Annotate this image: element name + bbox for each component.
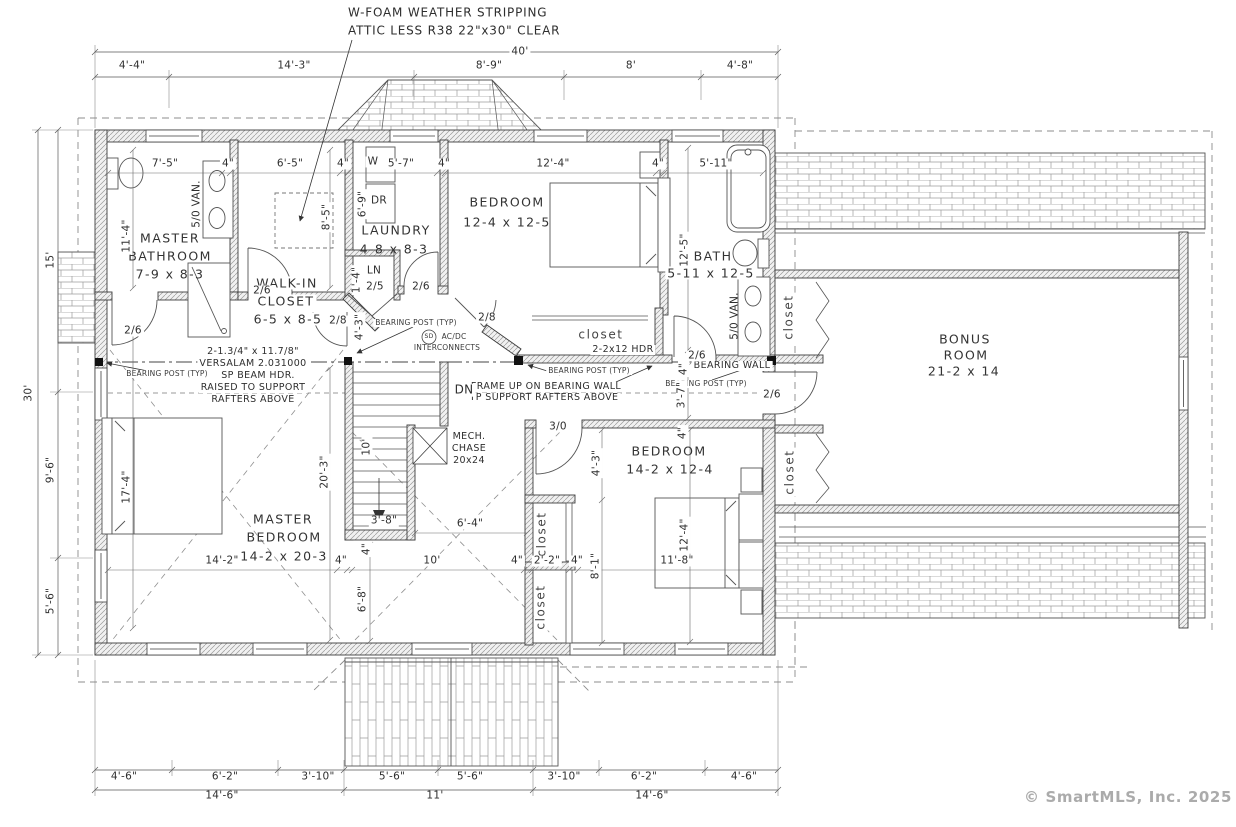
floor-plan-page: W-FOAM WEATHER STRIPPING ATTIC LESS R38 … [0, 0, 1236, 827]
dim-top-1: 4'-4" [117, 60, 147, 71]
note-weather-stripping: W-FOAM WEATHER STRIPPING [348, 7, 547, 20]
room-bedroom1-size: 12-4 x 12-5 [463, 215, 550, 228]
mech-chase-3: 20x24 [453, 456, 485, 466]
dim-wall-4c: 4" [436, 158, 452, 169]
chimney [58, 252, 97, 343]
dim-bottom-2: 6'-2" [210, 771, 240, 782]
linen-label: LN [367, 265, 381, 276]
dim-stair-38: 3'-8" [369, 515, 399, 526]
dim-mbed-203: 20'-3" [319, 453, 330, 490]
room-bedroom2: BEDROOM [631, 444, 706, 457]
note-bearing-wall: BEARING WALL [692, 361, 773, 371]
note-beam-line4: RAISED TO SUPPORT [199, 383, 308, 393]
dim-left-overall: 30' [23, 382, 34, 403]
dim-laundry-height: 6'-9" [357, 189, 368, 219]
toilet-master [107, 158, 143, 189]
toilet-bath [733, 239, 769, 268]
vanity-master [203, 161, 233, 238]
room-master-bath-1: MASTER [140, 231, 200, 244]
note-sd-line1: AC/DC [440, 333, 469, 341]
dim-wall-4j: 4" [569, 555, 585, 566]
dim-bedroom1-width: 12'-4" [534, 158, 571, 169]
note-attic-access: ATTIC LESS R38 22"x30" CLEAR [348, 25, 560, 38]
dim-laundry-width: 5'-7" [386, 158, 416, 169]
dim-bottom-3: 3'-10" [299, 771, 336, 782]
door-label-linen: 2/5 [364, 281, 386, 292]
closet-bonus-b-label: closet [784, 447, 797, 496]
note-bearing-post-1: BEARING POST (TYP) [124, 370, 210, 378]
room-master-bath-2: BATHROOM [128, 249, 212, 262]
vanity-label-master: 5/0 VAN. [191, 180, 202, 228]
bed-bedroom1 [550, 152, 670, 272]
note-beam-line2: VERSALAM 2.031000 [197, 359, 308, 369]
door-label-walkin: 2/6 [251, 285, 273, 296]
door-label-bedroom1: 2/8 [476, 312, 498, 323]
note-beam-line3: SP BEAM HDR. [219, 371, 297, 381]
vanity-bath [738, 277, 770, 356]
copyright-watermark: © SmartMLS, Inc. 2025 [1024, 790, 1232, 806]
room-master-bedroom-size: 14-2 x 20-3 [240, 549, 327, 562]
closet-bonus-a-label: closet [783, 292, 796, 341]
door-label-master-bath: 2/6 [122, 325, 144, 336]
room-walkin-size: 6-5 x 8-5 [252, 312, 325, 325]
dim-wall-4g: 4" [361, 541, 372, 557]
dim-left-1: 15' [45, 249, 56, 270]
room-bedroom1: BEDROOM [469, 195, 544, 208]
dim-bath-width: 5'-11" [697, 158, 734, 169]
dim-wall-4e: 4" [678, 361, 689, 377]
dim-top-overall: 40' [509, 46, 530, 57]
note-bearing-post-3: BEARING POST (TYP) [546, 367, 632, 375]
dim-wall-4h: 4" [333, 555, 349, 566]
dim-wall-4f: 4" [677, 425, 688, 441]
room-master-bedroom-2: BEDROOM [246, 530, 321, 543]
dim-mbath-height: 11'-4" [121, 217, 132, 254]
dim-wall-4d: 4" [650, 158, 666, 169]
note-bearing-post-2: BEARING POST (TYP) [373, 319, 459, 327]
closet-bedroom1-label: closet [578, 329, 623, 342]
note-sd-line2: INTERCONNECTS [412, 344, 482, 352]
dim-bottom-1: 4'-6" [109, 771, 139, 782]
room-bonus-2: ROOM [944, 348, 989, 361]
smoke-detector-label: SD [424, 334, 433, 340]
dim-bottom-group-2: 11' [424, 790, 445, 801]
dim-bottom-6: 3'-10" [545, 771, 582, 782]
mech-chase-1: MECH. [453, 432, 486, 442]
door-label-laundry: 2/6 [410, 281, 432, 292]
room-laundry-size: 4-8 x 8-3 [360, 242, 429, 255]
dim-bottom-group-1: 14'-6" [203, 790, 240, 801]
dim-top-5: 4'-8" [725, 60, 755, 71]
dim-hall-68: 6'-8" [357, 584, 368, 614]
dim-bed2-118: 11'-8" [658, 555, 695, 566]
dim-hall-64: 6'-4" [455, 518, 485, 529]
dim-bed2-124: 12'-4" [679, 516, 690, 553]
note-beam-line5: RAFTERS ABOVE [209, 395, 296, 405]
room-bonus-1: BONUS [939, 332, 991, 345]
dim-bottom-8: 4'-6" [729, 771, 759, 782]
dim-hall-37: 3'-7" [676, 380, 687, 410]
dim-walkin-height: 8'-5" [321, 202, 332, 232]
dim-bath-height: 12'-5" [679, 231, 690, 268]
door-label-bath: 2/6 [686, 350, 708, 361]
room-laundry: LAUNDRY [361, 223, 430, 236]
door-label-master-bedroom: 2/8 [327, 315, 349, 326]
dim-linen-depth: 1'-4" [351, 265, 362, 295]
bed-bedroom2 [655, 468, 763, 614]
dim-bottom-group-3: 14'-6" [633, 790, 670, 801]
dim-stair-10: 10' [361, 436, 372, 457]
dim-left-3: 5'-6" [45, 586, 56, 616]
roof-dormer [330, 80, 549, 138]
dim-mbath-width: 7'-5" [150, 158, 180, 169]
room-bath: BATH [694, 249, 733, 262]
closet-bedroom2-b-label: closet [535, 582, 548, 631]
dim-wall-4a: 4" [220, 158, 236, 169]
deck-below [345, 658, 558, 766]
dim-closet-22: 2'-2" [532, 555, 562, 566]
door-label-bedroom2: 3/0 [547, 421, 569, 432]
room-master-bath-size: 7-9 x 8-3 [136, 267, 205, 280]
dim-bedroom2-81: 8'-1" [590, 551, 601, 581]
dim-vestibule-43: 4'-3" [591, 448, 602, 478]
dim-mbed-width: 14'-2" [203, 555, 240, 566]
door-label-bonus: 2/6 [761, 389, 783, 400]
note-frame-line1: FRAME UP ON BEARING WALL [469, 382, 623, 392]
dim-hall-43a: 4'-3" [354, 312, 365, 342]
dim-mbed-174: 17'-4" [121, 468, 132, 505]
dim-wall-4i: 4" [509, 555, 525, 566]
note-header: 2-2x12 HDR [590, 345, 655, 355]
dim-bottom-5: 5'-6" [455, 771, 485, 782]
dim-left-2: 9'-6" [45, 455, 56, 485]
dryer-label: DR [371, 195, 387, 206]
note-frame-line2: TP SUPPORT RAFTERS ABOVE [468, 393, 621, 403]
room-bedroom2-size: 14-2 x 12-4 [626, 462, 713, 475]
dim-top-4: 8' [624, 60, 638, 71]
room-bonus-size: 21-2 x 14 [928, 364, 1000, 377]
mech-chase-2: CHASE [452, 444, 486, 454]
dim-hall-10: 10' [421, 555, 442, 566]
bonus-roof-bands [775, 153, 1206, 618]
closet-bedroom2-a-label: closet [536, 509, 549, 558]
stair-dn-label: DN [453, 384, 476, 397]
washer-label: W [366, 156, 381, 167]
dim-bottom-7: 6'-2" [629, 771, 659, 782]
vanity-label-bath: 5/0 VAN. [729, 292, 740, 340]
note-beam-line1: 2-1.3/4" x 11.7/8" [205, 347, 301, 357]
dim-walkin-width: 6'-5" [275, 158, 305, 169]
dim-top-2: 14'-3" [275, 60, 312, 71]
dim-top-3: 8'-9" [474, 60, 504, 71]
room-master-bedroom-1: MASTER [253, 512, 313, 525]
dim-bottom-4: 5'-6" [377, 771, 407, 782]
plan-linework [0, 0, 1236, 827]
dim-wall-4b: 4" [335, 158, 351, 169]
